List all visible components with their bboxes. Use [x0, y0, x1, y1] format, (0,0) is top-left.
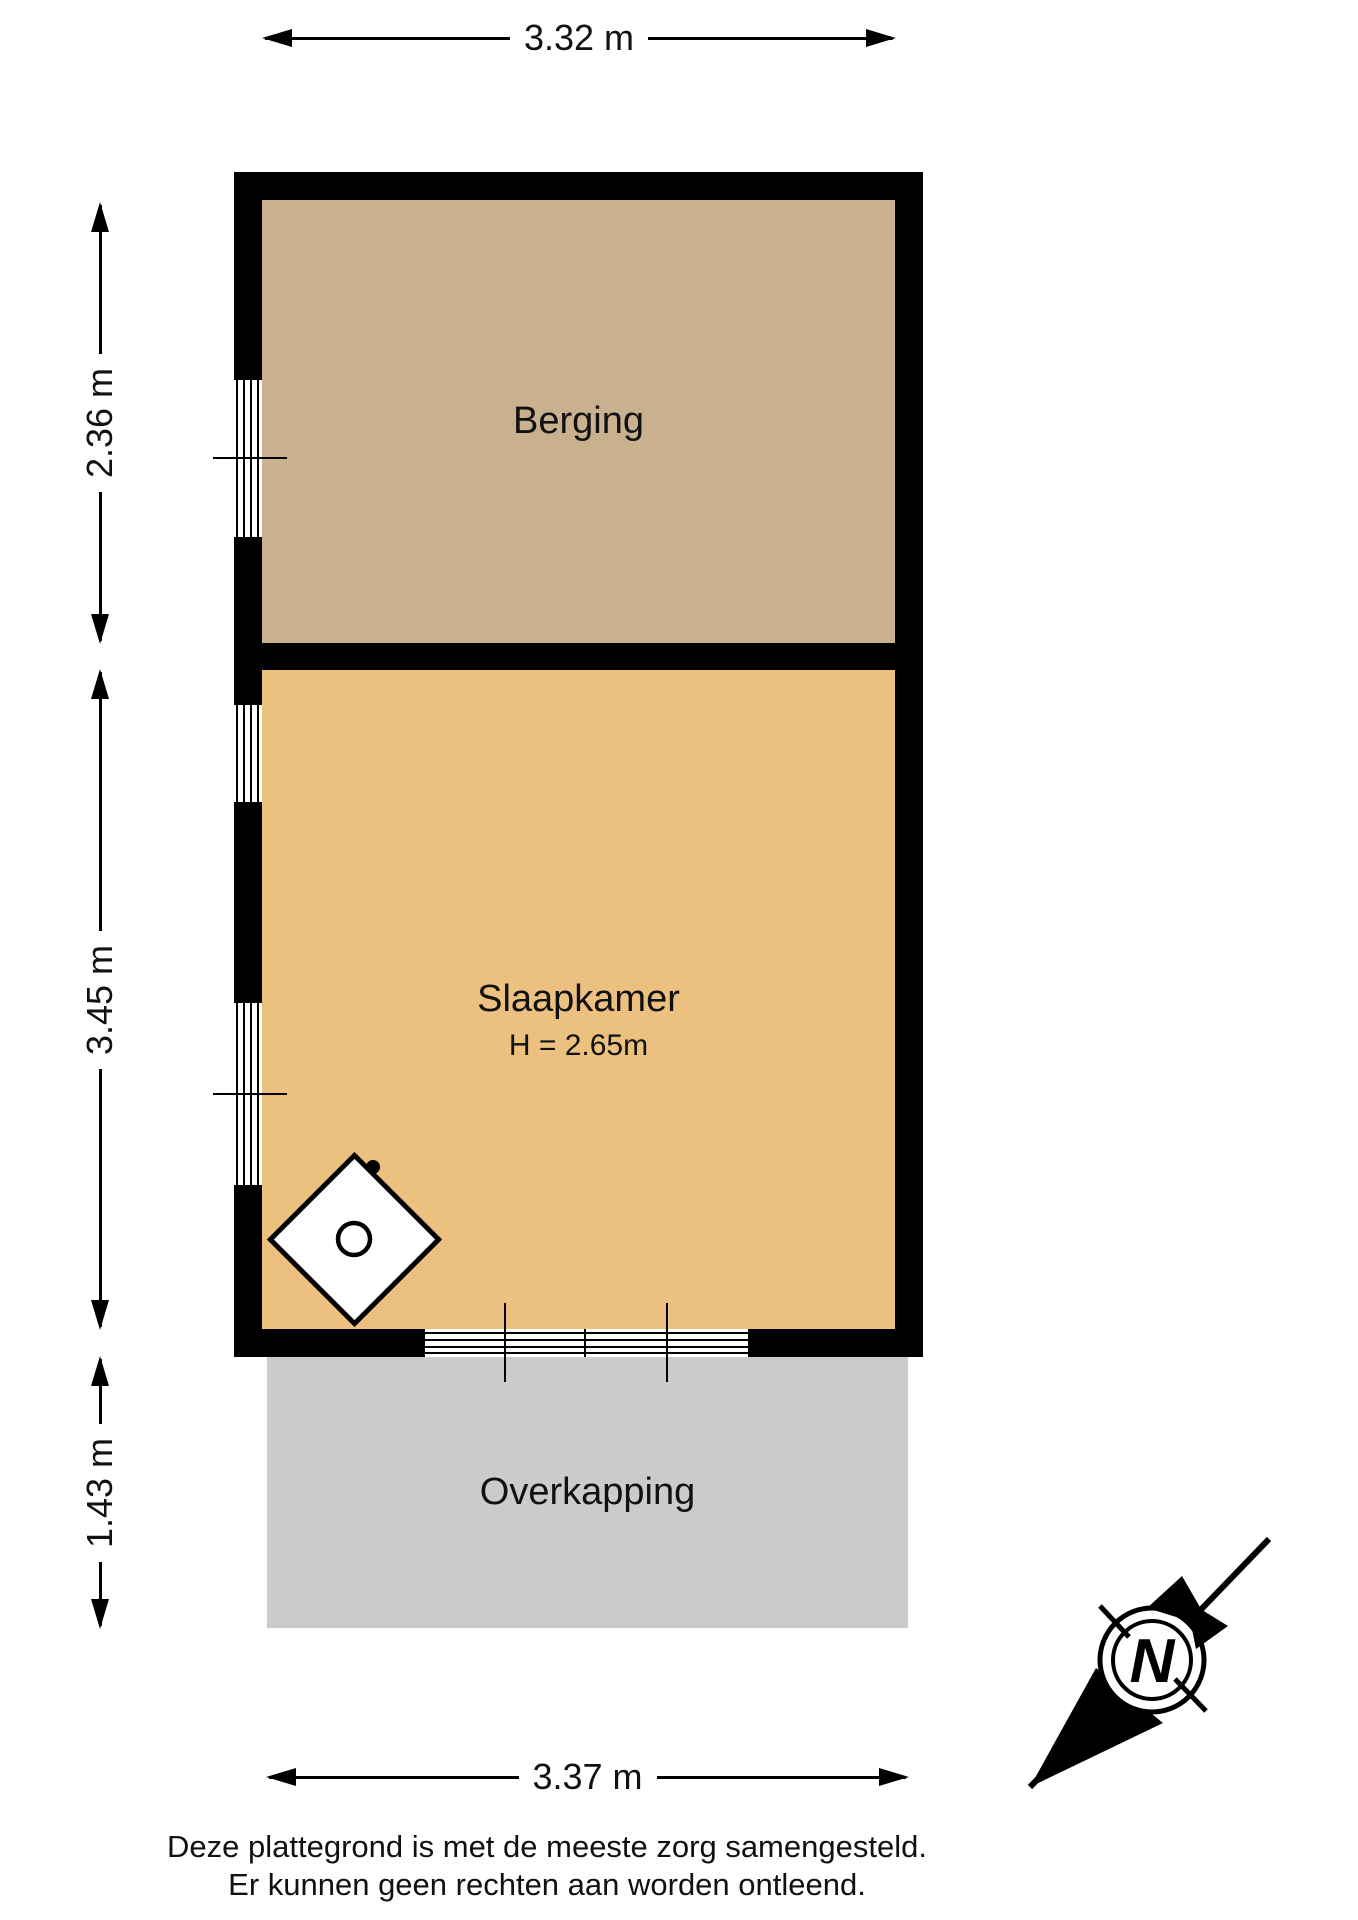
dimension-bottom-width: 3.37 m [267, 1759, 908, 1795]
arrow-left-icon [266, 1768, 296, 1786]
room-berging: Berging [262, 200, 895, 643]
dimension-label: 1.43 m [79, 1423, 121, 1561]
compass-north-label: N [1130, 1627, 1176, 1696]
arrow-left-icon [262, 29, 292, 47]
dimension-label: 3.37 m [518, 1756, 656, 1798]
arrow-down-icon [91, 1599, 109, 1629]
window-tick [213, 1093, 287, 1095]
room-label-block: Slaapkamer H = 2.65m [477, 978, 680, 1063]
arrow-up-icon [91, 1356, 109, 1386]
stove-flue-dot [366, 1160, 380, 1174]
stove-icon [250, 1140, 470, 1350]
arrow-right-icon [879, 1768, 909, 1786]
disclaimer-line-1: Deze plattegrond is met de meeste zorg s… [57, 1828, 1037, 1866]
dimension-overkapping-depth: 1.43 m [82, 1357, 118, 1628]
arrow-up-icon [91, 202, 109, 232]
compass-north-icon: N [1005, 1515, 1295, 1805]
room-overkapping: Overkapping [267, 1357, 908, 1628]
window-tick [213, 457, 287, 459]
arrow-down-icon [91, 1300, 109, 1330]
dimension-label: 3.45 m [79, 930, 121, 1068]
dimension-label: 2.36 m [79, 354, 121, 492]
arrow-down-icon [91, 614, 109, 644]
dimension-label: 3.32 m [510, 17, 648, 59]
door-tick [666, 1303, 668, 1382]
dimension-berging-depth: 2.36 m [82, 203, 118, 643]
room-label-slaapkamer: Slaapkamer [477, 978, 680, 1021]
arrow-right-icon [866, 29, 896, 47]
disclaimer-line-2: Er kunnen geen rechten aan worden ontlee… [57, 1866, 1037, 1904]
door-tick-mid [584, 1329, 586, 1357]
stove-ring [338, 1223, 370, 1255]
window-slaapkamer-upper [234, 702, 262, 805]
room-label-overkapping: Overkapping [480, 1471, 695, 1514]
arrow-up-icon [91, 669, 109, 699]
dimension-top-width: 3.32 m [263, 20, 895, 56]
floorplan-canvas: 3.32 m 2.36 m 3.45 m 1.43 m Overkapping … [0, 0, 1358, 1920]
room-label-berging: Berging [513, 400, 644, 443]
disclaimer-text: Deze plattegrond is met de meeste zorg s… [57, 1828, 1037, 1904]
dimension-slaapkamer-depth: 3.45 m [82, 670, 118, 1329]
sliding-door-slaapkamer [425, 1329, 748, 1357]
ceiling-height-label: H = 2.65m [509, 1029, 648, 1063]
door-tick [504, 1303, 506, 1382]
